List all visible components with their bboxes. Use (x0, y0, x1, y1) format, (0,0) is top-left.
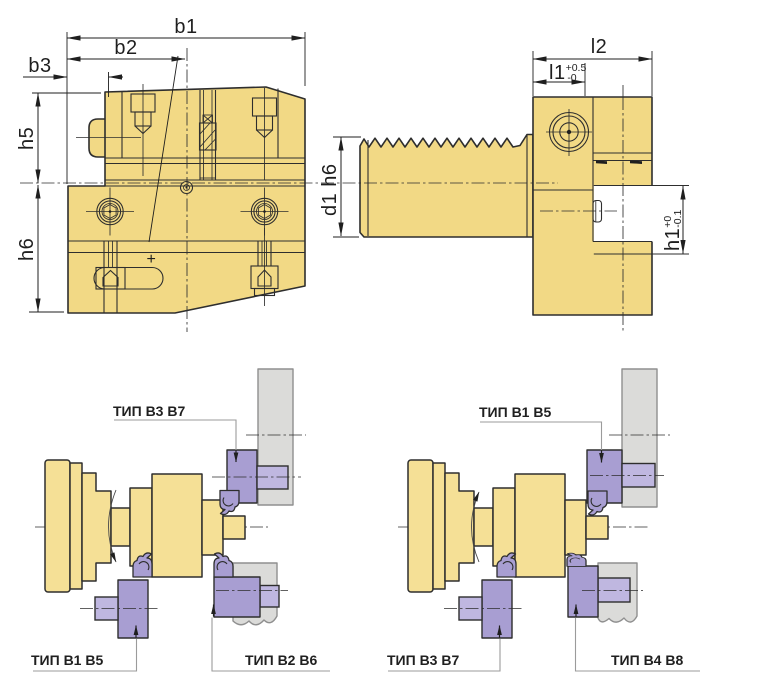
tool-holder-body (568, 566, 598, 617)
tool-holder-shank (260, 586, 279, 608)
dimension-b3: b3 (23, 55, 123, 97)
svg-text:d1 h6: d1 h6 (319, 163, 341, 216)
front-boss (89, 119, 106, 157)
type-label-a-top: ТИП B3 B7 (113, 403, 185, 419)
svg-text:b3: b3 (28, 55, 51, 77)
type-label-a-bottom-left: ТИП B1 B5 (31, 652, 103, 668)
application-diagram-left: ТИП B3 B7 ТИП B1 B5 ТИП B2 B6 (31, 369, 330, 671)
tool-holder-shank (598, 578, 630, 602)
dimension-h1: h1+0-0.1 (662, 186, 684, 254)
tool-holder-shank (257, 466, 288, 489)
svg-text:b2: b2 (114, 37, 137, 59)
dimension-l1: l1+0.5-0 (533, 62, 586, 96)
dimension-b2: b2 (67, 37, 185, 59)
svg-text:h1+0-0.1: h1+0-0.1 (662, 210, 684, 251)
svg-text:l1+0.5-0: l1+0.5-0 (549, 62, 586, 84)
tool-slot-opening (594, 186, 656, 242)
svg-text:b1: b1 (174, 16, 197, 38)
reference-cross: + (147, 251, 156, 268)
tool-holder-body (482, 580, 512, 638)
cutting-insert (588, 491, 607, 515)
tool-holder-body (214, 577, 260, 617)
shank (360, 135, 533, 238)
type-label-a-bottom-right: ТИП B2 B6 (245, 652, 317, 668)
application-diagram-right: ТИП B1 B5 ТИП B3 B7 ТИП B4 B8 (387, 369, 700, 671)
type-label-b-top: ТИП B1 B5 (479, 404, 551, 420)
technical-drawing: + (0, 0, 771, 690)
svg-text:l2: l2 (591, 36, 608, 58)
dimension-d1: d1 h6 (319, 137, 361, 237)
front-view: + (68, 48, 305, 332)
lathe-chuck-right (408, 460, 474, 592)
svg-text:h6: h6 (16, 238, 38, 261)
type-label-b-bottom-left: ТИП B3 B7 (387, 652, 459, 668)
cutting-insert (214, 553, 233, 577)
type-label-b-bottom-right: ТИП B4 B8 (611, 652, 683, 668)
lathe-chuck-left (45, 460, 111, 592)
tool-holder-drawing-page: + (0, 0, 771, 690)
cutting-insert (220, 491, 239, 515)
tool-holder-body (118, 580, 148, 638)
dimension-h6: h6 (16, 185, 64, 312)
svg-text:h5: h5 (16, 127, 38, 150)
